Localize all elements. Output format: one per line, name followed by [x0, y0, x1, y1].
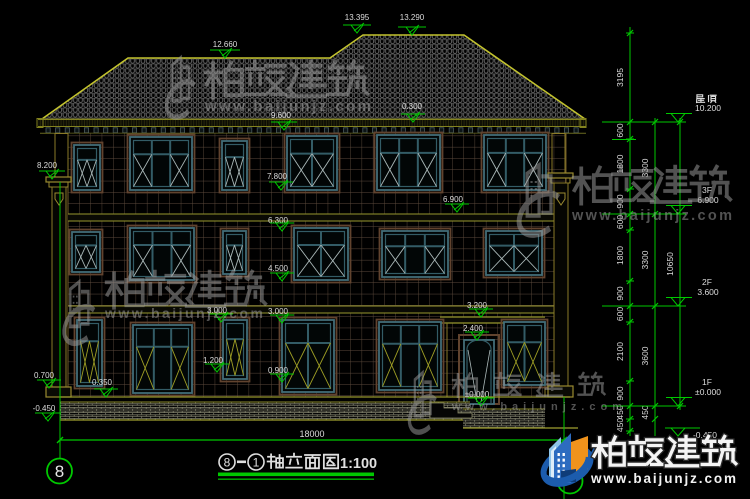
svg-text:450: 450 — [640, 405, 650, 419]
svg-text:18000: 18000 — [299, 429, 324, 439]
svg-text:3195: 3195 — [615, 68, 625, 87]
svg-text:10650: 10650 — [665, 252, 675, 276]
svg-text:1F: 1F — [702, 377, 712, 387]
svg-text:7.800: 7.800 — [267, 172, 288, 181]
svg-text:±0.000: ±0.000 — [695, 387, 721, 397]
svg-text:2100: 2100 — [615, 342, 625, 361]
svg-text:3300: 3300 — [640, 250, 650, 269]
svg-text:2F: 2F — [702, 277, 712, 287]
svg-text:900: 900 — [615, 386, 625, 400]
svg-text:3.600: 3.600 — [697, 287, 719, 297]
svg-text:1800: 1800 — [615, 246, 625, 265]
svg-text:-0.450: -0.450 — [33, 404, 56, 413]
svg-text:6.900: 6.900 — [443, 195, 464, 204]
svg-text:8.200: 8.200 — [37, 161, 58, 170]
svg-text:900: 900 — [615, 286, 625, 300]
svg-text:3300: 3300 — [640, 158, 650, 177]
svg-text:4.500: 4.500 — [268, 264, 289, 273]
svg-text:0.700: 0.700 — [34, 371, 55, 380]
svg-text:1:100: 1:100 — [340, 456, 377, 472]
svg-text:13.290: 13.290 — [400, 13, 425, 22]
svg-text:10.200: 10.200 — [695, 103, 721, 113]
svg-text:0.350: 0.350 — [92, 378, 113, 387]
svg-text:13.395: 13.395 — [345, 13, 370, 22]
svg-text:450: 450 — [615, 418, 625, 432]
svg-text:1: 1 — [253, 456, 260, 470]
svg-text:600: 600 — [615, 123, 625, 137]
svg-text:8: 8 — [55, 462, 64, 481]
svg-text:3600: 3600 — [640, 346, 650, 365]
svg-text:600: 600 — [615, 307, 625, 321]
svg-text:8: 8 — [224, 456, 231, 470]
svg-text:0.300: 0.300 — [402, 102, 423, 111]
svg-text:12.660: 12.660 — [213, 40, 238, 49]
